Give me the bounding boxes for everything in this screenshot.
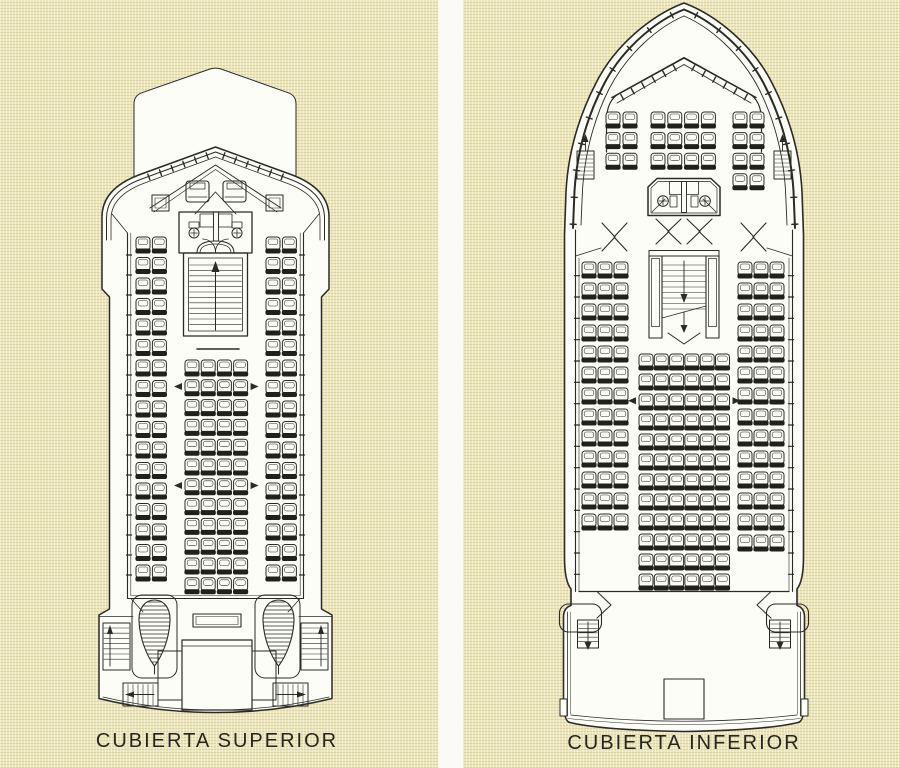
- deck-plans-drawing: [0, 0, 900, 768]
- deck-plan-inferior: [560, 3, 809, 732]
- brochure-page: CUBIERTA SUPERIOR CUBIERTA INFERIOR: [0, 0, 900, 768]
- deck-plan-superior: [99, 68, 332, 712]
- fender-port: [560, 699, 567, 716]
- fender-starboard: [801, 699, 808, 716]
- deck-label-inferior: CUBIERTA INFERIOR: [567, 732, 800, 755]
- deck-label-superior: CUBIERTA SUPERIOR: [96, 730, 338, 753]
